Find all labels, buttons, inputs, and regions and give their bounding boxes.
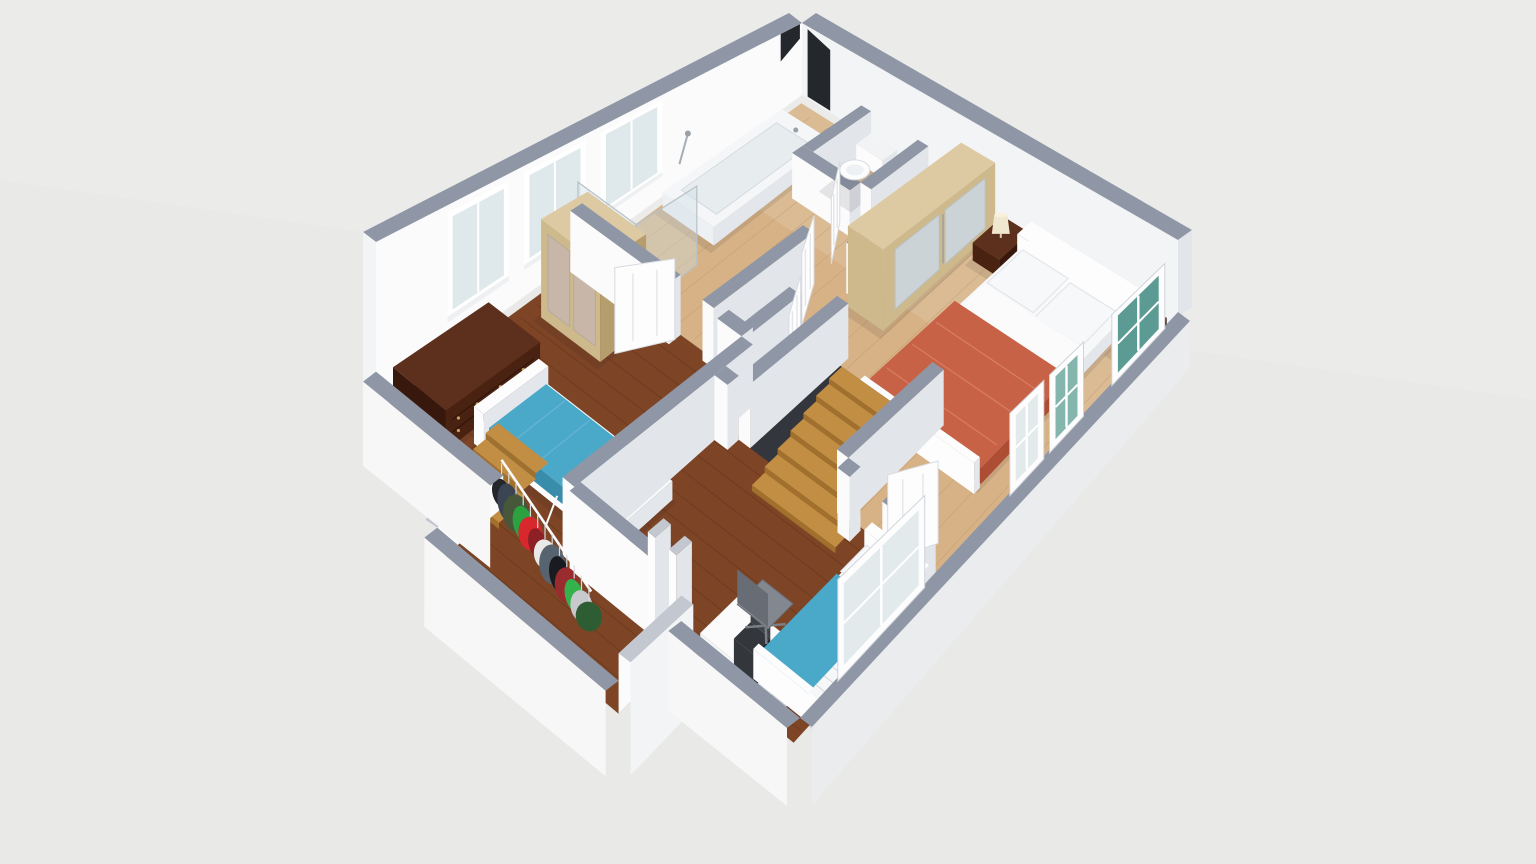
double-bed-footboard-side <box>974 457 980 494</box>
wall-bathroom-hall-b-front <box>703 300 714 369</box>
table-lamp-left-shade-top <box>994 212 1007 217</box>
wall-master-kids-b-front <box>838 468 850 542</box>
dresser-knob <box>457 416 460 419</box>
wall-master-kids-a-side <box>728 376 739 450</box>
floorplan-scene <box>0 0 1536 864</box>
door-left-bedroom <box>615 259 675 354</box>
toilet-seat <box>846 164 864 175</box>
wall-master-kids-a-front <box>715 375 728 450</box>
wardrobe-left-mirror <box>548 235 570 327</box>
shower-head <box>685 131 691 137</box>
table-lamp-left-shade <box>992 215 1010 234</box>
bathtub-faucet <box>793 128 798 133</box>
dresser-knob <box>457 429 460 432</box>
floorplan-3d-render <box>0 0 1536 864</box>
wall-master-kids-b-side <box>850 467 861 542</box>
exterior-wall-upper-right-end <box>1178 230 1192 317</box>
